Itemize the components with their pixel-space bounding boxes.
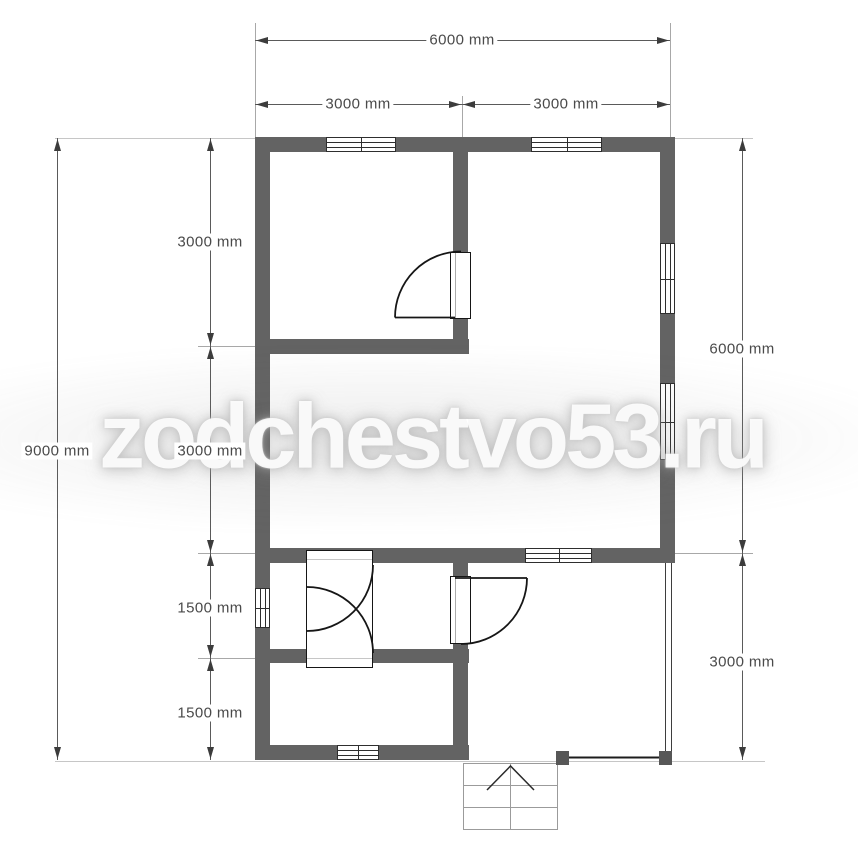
plan-lines-layer: [0, 0, 858, 859]
floor-plan-canvas: zodchestvo53.ru 6000 mm 3000 mm 3000 mm …: [0, 0, 858, 859]
porch-post-right: [659, 751, 672, 765]
dim-label-left-seg-3: 1500 mm: [174, 600, 245, 617]
porch-railing: [556, 563, 672, 765]
dim-label-top-seg-1: 3000 mm: [322, 96, 393, 113]
door-swings: [307, 252, 527, 654]
dim-label-left-seg-1: 3000 mm: [174, 234, 245, 251]
dim-label-top-total: 6000 mm: [426, 32, 497, 49]
extension-lines: [55, 23, 765, 762]
dim-label-right-seg-1: 6000 mm: [706, 341, 777, 358]
dimension-arrows: [54, 37, 746, 759]
dim-label-top-seg-2: 3000 mm: [530, 96, 601, 113]
entry-stairs: [464, 764, 558, 830]
dim-label-left-total: 9000 mm: [21, 443, 92, 460]
dim-label-right-seg-2: 3000 mm: [706, 654, 777, 671]
dim-label-left-seg-4: 1500 mm: [174, 705, 245, 722]
dim-label-left-seg-2: 3000 mm: [174, 443, 245, 460]
dimension-lines: [58, 41, 743, 761]
porch-post-left: [556, 751, 569, 765]
